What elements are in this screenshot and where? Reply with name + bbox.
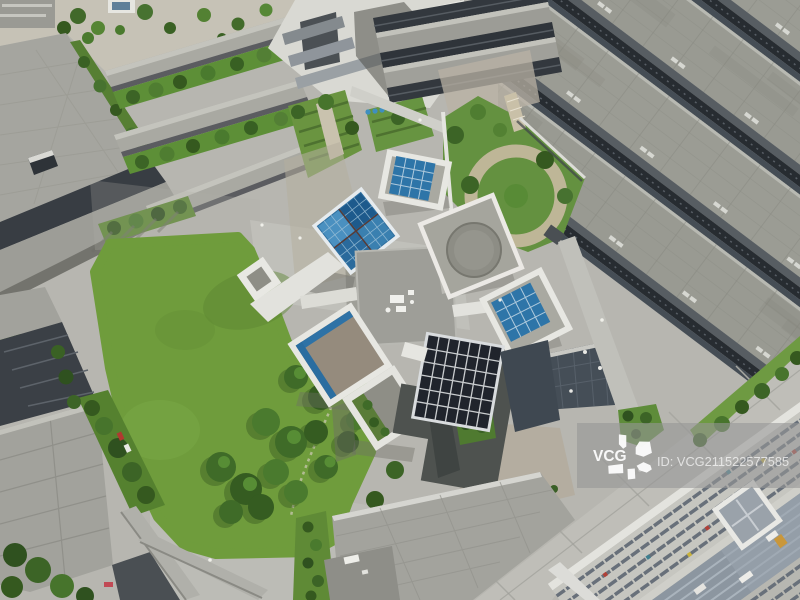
svg-text:VCG: VCG xyxy=(593,448,627,465)
svg-text:ID: VCG211522577585: ID: VCG211522577585 xyxy=(657,454,789,469)
